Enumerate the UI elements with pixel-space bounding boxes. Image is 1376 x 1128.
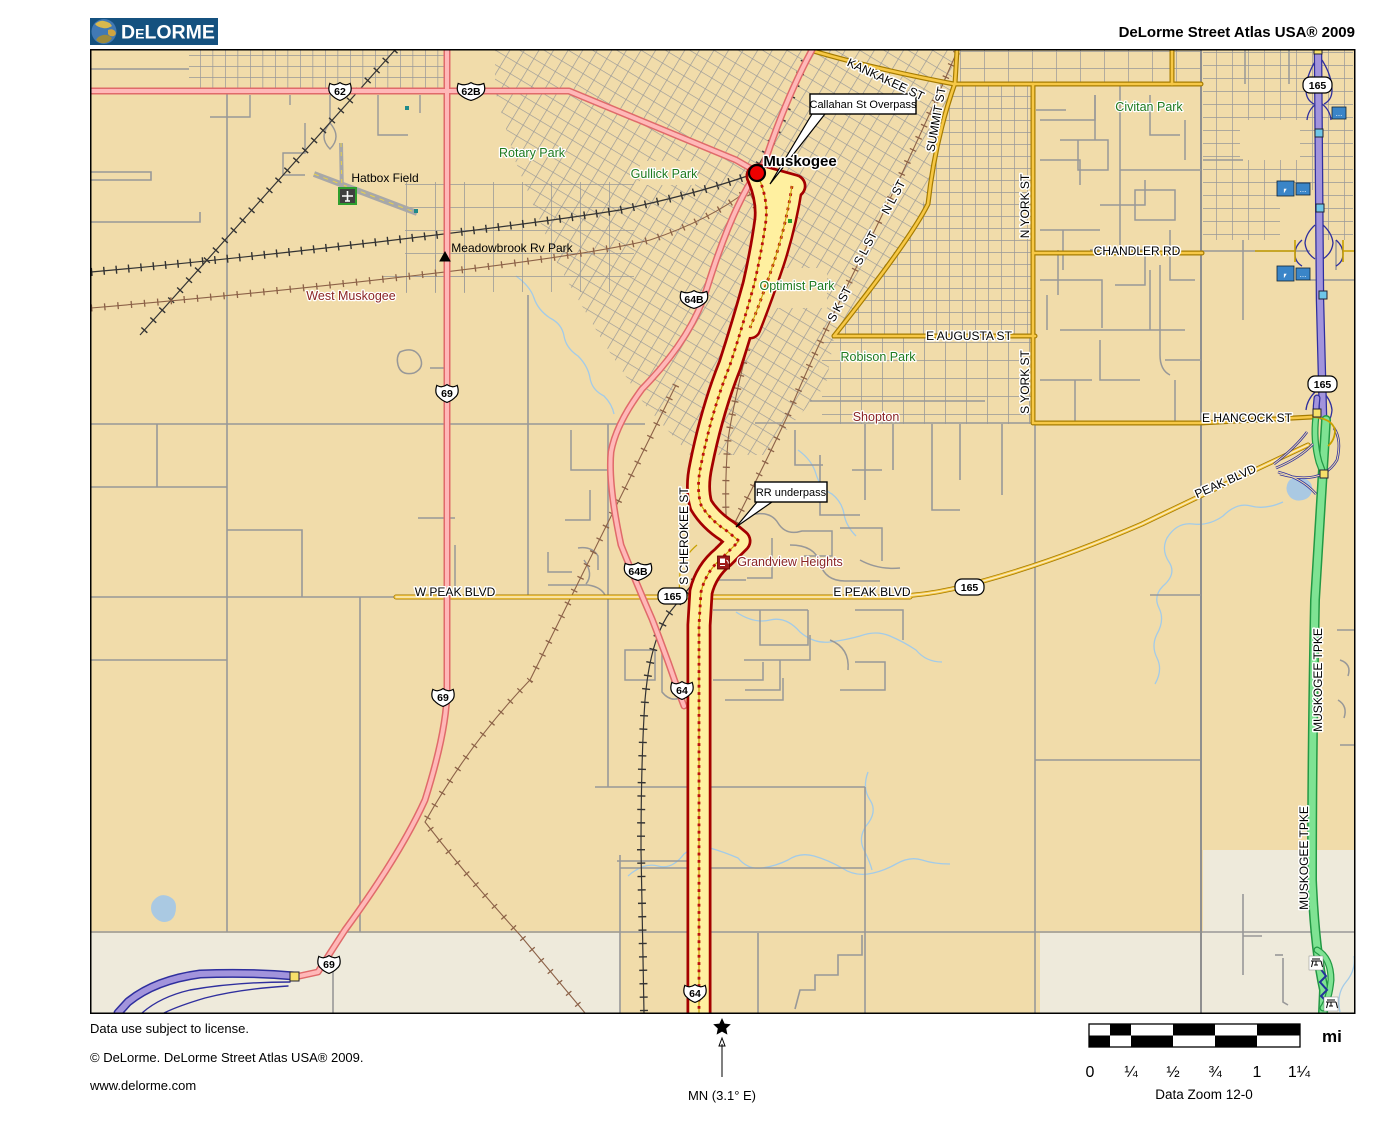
svg-text:64: 64 <box>689 988 701 1000</box>
svg-text:Shopton: Shopton <box>853 410 900 424</box>
svg-text:Callahan St Overpass: Callahan St Overpass <box>810 99 917 111</box>
svg-text:MN (3.1° E): MN (3.1° E) <box>688 1088 756 1103</box>
svg-text:Civitan Park: Civitan Park <box>1115 100 1183 114</box>
svg-text:Robison Park: Robison Park <box>840 350 916 364</box>
svg-text:165: 165 <box>664 591 682 603</box>
svg-text:69: 69 <box>441 388 453 400</box>
svg-text:62: 62 <box>334 86 346 98</box>
svg-text:62B: 62B <box>461 86 481 98</box>
svg-text:N YORK ST: N YORK ST <box>1018 173 1032 238</box>
svg-text:S YORK ST: S YORK ST <box>1018 349 1032 413</box>
svg-text:E PEAK BLVD: E PEAK BLVD <box>833 585 910 599</box>
svg-text:CHANDLER RD: CHANDLER RD <box>1094 244 1181 258</box>
svg-text:¼: ¼ <box>1124 1064 1138 1081</box>
svg-text:69: 69 <box>323 959 335 971</box>
svg-text:69: 69 <box>437 692 449 704</box>
svg-text:165: 165 <box>1314 379 1332 391</box>
svg-text:165: 165 <box>961 582 979 594</box>
svg-text:...: ... <box>1336 109 1343 118</box>
svg-text:S CHEROKEE ST: S CHEROKEE ST <box>677 487 691 585</box>
svg-text:© DeLorme. DeLorme Street Atla: © DeLorme. DeLorme Street Atlas USA® 200… <box>90 1050 364 1065</box>
svg-text:DELORME: DELORME <box>121 22 215 44</box>
svg-text:Hatbox Field: Hatbox Field <box>351 171 418 185</box>
svg-text:Rotary Park: Rotary Park <box>499 146 566 160</box>
svg-text:Gullick Park: Gullick Park <box>631 167 698 181</box>
svg-text:DeLorme Street Atlas USA® 2009: DeLorme Street Atlas USA® 2009 <box>1119 24 1355 41</box>
svg-text:⎖: ⎖ <box>1281 270 1288 280</box>
svg-text:RR underpass: RR underpass <box>756 487 827 499</box>
svg-text:...: ... <box>1300 185 1307 194</box>
svg-text:MUSKOGEE TPKE: MUSKOGEE TPKE <box>1311 628 1325 732</box>
svg-text:E AUGUSTA ST: E AUGUSTA ST <box>926 329 1012 343</box>
svg-text:West Muskogee: West Muskogee <box>306 289 395 303</box>
svg-text:1¼: 1¼ <box>1288 1064 1311 1081</box>
svg-text:www.delorme.com: www.delorme.com <box>89 1078 196 1093</box>
svg-text:Data Zoom 12-0: Data Zoom 12-0 <box>1155 1087 1253 1102</box>
svg-text:Optimist Park: Optimist Park <box>759 279 835 293</box>
svg-text:64: 64 <box>676 685 688 697</box>
svg-text:MUSKOGEE TPKE: MUSKOGEE TPKE <box>1297 806 1311 910</box>
svg-text:0: 0 <box>1086 1064 1095 1081</box>
svg-text:½: ½ <box>1166 1064 1179 1081</box>
svg-text:¾: ¾ <box>1208 1064 1222 1081</box>
svg-text:64B: 64B <box>628 566 648 578</box>
svg-text:Muskogee: Muskogee <box>763 153 836 170</box>
svg-text:E HANCOCK ST: E HANCOCK ST <box>1202 411 1293 425</box>
svg-text:⎖: ⎖ <box>1281 185 1288 195</box>
svg-text:mi: mi <box>1322 1027 1342 1046</box>
svg-text:64B: 64B <box>684 294 704 306</box>
svg-text:Grandview Heights: Grandview Heights <box>737 555 843 569</box>
svg-text:W PEAK BLVD: W PEAK BLVD <box>415 585 496 599</box>
svg-text:165: 165 <box>1309 80 1327 92</box>
svg-text:Data use subject to license.: Data use subject to license. <box>90 1021 249 1036</box>
svg-text:...: ... <box>1300 270 1307 279</box>
svg-text:1: 1 <box>1253 1064 1262 1081</box>
svg-text:Meadowbrook Rv Park: Meadowbrook Rv Park <box>451 241 573 255</box>
